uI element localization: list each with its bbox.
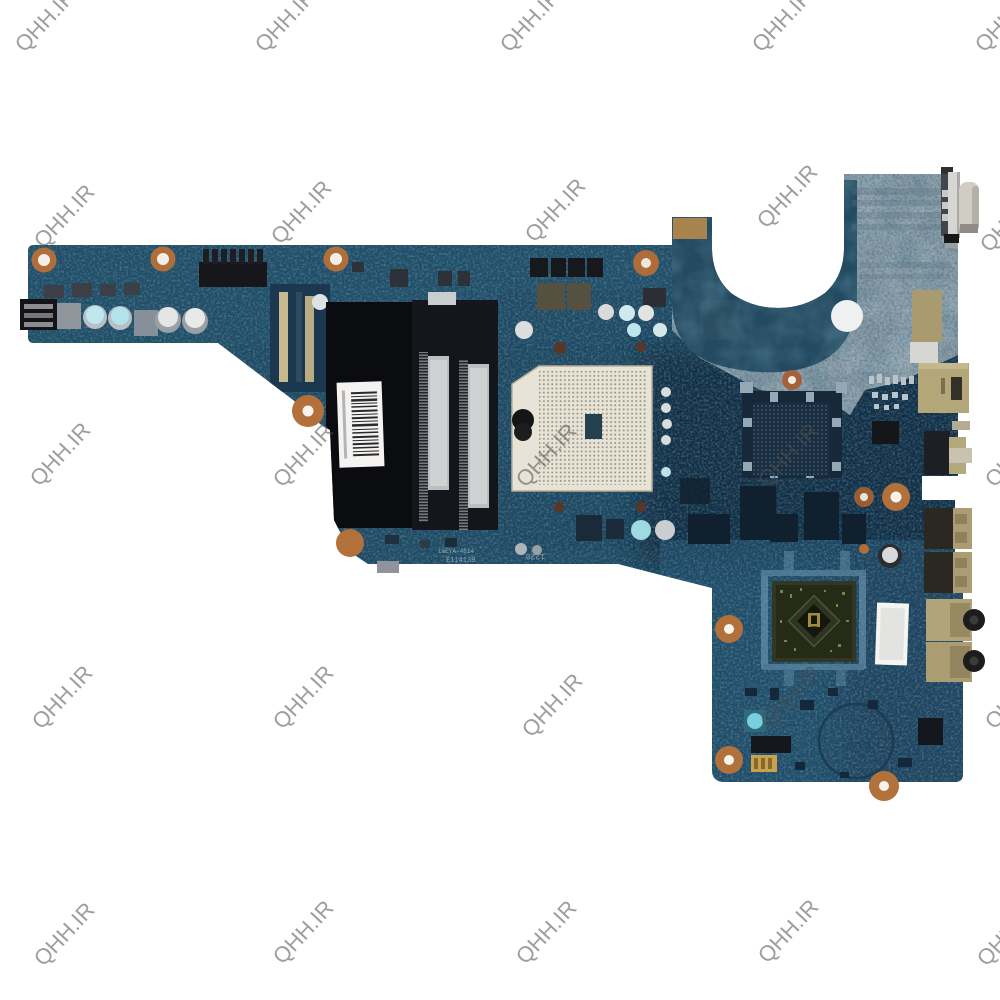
svg-text:1220: 1220 [526, 551, 545, 560]
svg-text:tmEYA-4B14: tmEYA-4B14 [438, 548, 474, 555]
svg-text:E114139: E114139 [446, 557, 475, 565]
